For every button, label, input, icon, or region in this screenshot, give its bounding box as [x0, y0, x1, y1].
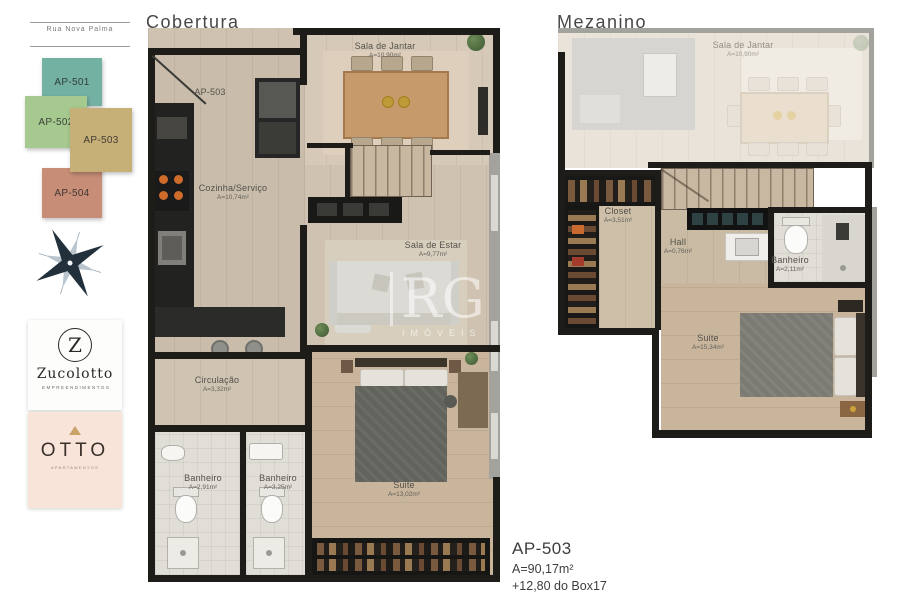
room-label-suite: Suite A=15,34m² [692, 333, 724, 351]
concrete-wall [558, 28, 874, 33]
room-name: Suite [692, 333, 724, 343]
decor-dish [850, 406, 856, 412]
sofa-armrest [329, 261, 337, 325]
room-label-hall: Hall A=0,76m² [664, 237, 692, 255]
room-area: A=10,74m² [199, 194, 268, 201]
fridge [259, 82, 296, 118]
bed [355, 386, 447, 482]
bed-headboard [355, 358, 447, 367]
wall [153, 425, 307, 432]
closet-item [572, 225, 584, 234]
street-label: Rua Nova Palma [30, 26, 130, 33]
otto-logo: OTTO APARTAMENTOS [28, 412, 122, 508]
unit-label: AP-503 [83, 135, 118, 146]
zucolotto-subtitle: EMPREENDIMENTOS [42, 385, 110, 390]
room-label-sala-de-estar: Sala de Estar A=9,77m² [405, 240, 462, 258]
wall [493, 477, 500, 582]
plant [467, 33, 485, 51]
room-name: Sala de Jantar [355, 41, 416, 51]
vanity-sink [735, 238, 759, 256]
shower-drain [840, 265, 846, 271]
room-area: A=2,91m² [184, 484, 222, 491]
wall [768, 282, 867, 288]
burner [174, 175, 183, 184]
nightstand [341, 360, 353, 373]
zucolotto-monogram: Z [58, 328, 92, 362]
bed-pillow [834, 357, 857, 396]
sink-basin [162, 236, 182, 260]
sideboard [478, 87, 488, 135]
wall [493, 28, 500, 155]
wall [148, 48, 304, 55]
tv-console-door [317, 203, 337, 216]
toilet [261, 495, 283, 523]
room-name: Banheiro [184, 473, 222, 483]
railing-panel [737, 213, 748, 225]
sofa [335, 261, 459, 315]
wall [652, 328, 659, 438]
summary-unit: AP-503 [512, 539, 607, 559]
wall [558, 52, 565, 332]
room-area: A=15,34m² [692, 344, 724, 351]
burner [174, 191, 183, 200]
unit-card-ap-503: AP-503 [70, 108, 132, 172]
plant [315, 323, 329, 337]
room-name: Sala de Estar [405, 240, 462, 250]
railing-panel [752, 213, 763, 225]
wall [300, 225, 307, 352]
wall [655, 170, 661, 330]
wall [305, 352, 312, 575]
burner [159, 191, 168, 200]
otto-name: OTTO [41, 440, 109, 462]
burner [159, 175, 168, 184]
unit-label: AP-504 [54, 188, 89, 199]
wall [648, 162, 872, 168]
shower-drain [180, 550, 186, 556]
room-name: Hall [664, 237, 692, 247]
window [491, 175, 498, 231]
wardrobe-shelf [317, 559, 485, 571]
shower-fixture [836, 223, 849, 240]
room-label-banheiro: Banheiro A=2,11m² [771, 255, 809, 273]
shower-drain [266, 550, 272, 556]
staircase [350, 145, 432, 197]
room-name: Suite [388, 480, 420, 490]
throw-pillow [372, 274, 391, 293]
compass-icon [30, 223, 110, 303]
room-area: A=9,77m² [405, 251, 462, 258]
toilet [784, 225, 808, 254]
room-label-sala-de-jantar: Sala de Jantar A=10,90m² [355, 41, 416, 59]
room-area: A=13,02m² [388, 491, 420, 498]
room-label-ghost-sala-de-jantar: Sala de Jantar A=10,90m² [713, 40, 774, 58]
oven [259, 122, 296, 154]
concrete-wall [869, 28, 874, 168]
unit-label: AP-502 [38, 117, 73, 128]
summary-area: A=90,17m² [512, 562, 607, 576]
railing-panel [707, 213, 718, 225]
plant [465, 352, 478, 365]
shower-tray [253, 537, 285, 569]
railing-panel [692, 213, 703, 225]
concrete-wall [872, 207, 877, 377]
staircase [661, 168, 814, 210]
room-area: A=3,32m² [195, 386, 240, 393]
wall [300, 28, 307, 85]
room-area: A=3,25m² [259, 484, 297, 491]
entry-unit-label: AP-503 [194, 87, 225, 97]
wall [865, 162, 872, 438]
bed-pillow [834, 317, 857, 356]
tv-console-door [369, 203, 389, 216]
wall [652, 430, 870, 438]
desk-chair [444, 395, 457, 408]
table-centerpiece [382, 96, 394, 108]
room-label-cozinha: Cozinha/Serviço A=10,74m² [199, 183, 268, 201]
street-line-top [30, 22, 130, 23]
bed [740, 313, 833, 397]
room-name: Closet [604, 206, 632, 216]
wall [240, 432, 246, 575]
bathroom-sink [161, 445, 185, 461]
zucolotto-name: Zucolotto [37, 366, 114, 382]
wall [148, 575, 500, 582]
room-area: A=0,76m² [664, 248, 692, 255]
room-label-closet: Closet A=3,51m² [604, 206, 632, 224]
tv-console-door [343, 203, 363, 216]
kitchen-island [152, 307, 285, 337]
wall [148, 352, 312, 359]
wall [345, 145, 350, 197]
room-area: A=2,11m² [771, 266, 809, 273]
bed-pillow [404, 369, 448, 387]
room-name: Banheiro [259, 473, 297, 483]
closet-item [572, 257, 584, 266]
plan-summary: AP-503 A=90,17m² +12,80 do Box17 [512, 539, 607, 593]
bathroom-vanity [249, 443, 283, 460]
wall [305, 345, 500, 352]
desk [458, 372, 488, 428]
cobertura-plan: Sala de Jantar A=10,90m² AP-503 Cozinha/… [145, 25, 510, 582]
room-name: Cozinha/Serviço [199, 183, 268, 193]
zucolotto-logo: Z Zucolotto EMPREENDIMENTOS [28, 320, 122, 410]
room-name: Sala de Jantar [713, 40, 774, 50]
wall [768, 207, 867, 213]
sofa-back [335, 313, 459, 325]
dining-table [343, 71, 449, 139]
room-label-circulacao: Circulação A=3,32m² [195, 375, 240, 393]
table-centerpiece [398, 96, 410, 108]
room-name: AP-503 [194, 87, 225, 97]
bed-pillow [360, 369, 404, 387]
room-name: Circulação [195, 375, 240, 385]
unit-label: AP-501 [54, 77, 89, 88]
room-label-suite: Suite A=13,02m² [388, 480, 420, 498]
floor-closet [599, 206, 655, 328]
toilet [175, 495, 197, 523]
sofa-armrest [451, 261, 459, 325]
shoe-rack [568, 180, 654, 202]
railing-panel [722, 213, 733, 225]
otto-subtitle: APARTAMENTOS [51, 465, 99, 470]
room-area: A=10,90m² [713, 51, 774, 58]
throw-pillow [406, 272, 425, 291]
room-label-banheiro-1: Banheiro A=2,91m² [184, 473, 222, 491]
wall [293, 28, 500, 35]
summary-note: +12,80 do Box17 [512, 579, 607, 593]
unit-card-ap-504: AP-504 [42, 168, 102, 218]
shower-tray [167, 537, 199, 569]
room-area: A=10,90m² [355, 52, 416, 59]
wall [558, 170, 661, 176]
wardrobe-shelf [317, 543, 485, 555]
kitchen-appliance [157, 117, 187, 139]
wall [148, 48, 155, 582]
wall [558, 328, 659, 335]
window [491, 413, 498, 459]
otto-triangle-icon [69, 426, 81, 435]
floorplan-sheet: Rua Nova Palma AP-501 AP-502 AP-503 AP-5… [0, 0, 900, 605]
mezanino-plan: Sala de Jantar A=10,90m² Closet A=3,51m²… [555, 25, 880, 445]
nightstand [838, 300, 863, 312]
wall [430, 150, 490, 155]
room-name: Banheiro [771, 255, 809, 265]
room-label-banheiro-2: Banheiro A=3,25m² [259, 473, 297, 491]
street-line-bottom [30, 46, 130, 47]
room-area: A=3,51m² [604, 217, 632, 224]
